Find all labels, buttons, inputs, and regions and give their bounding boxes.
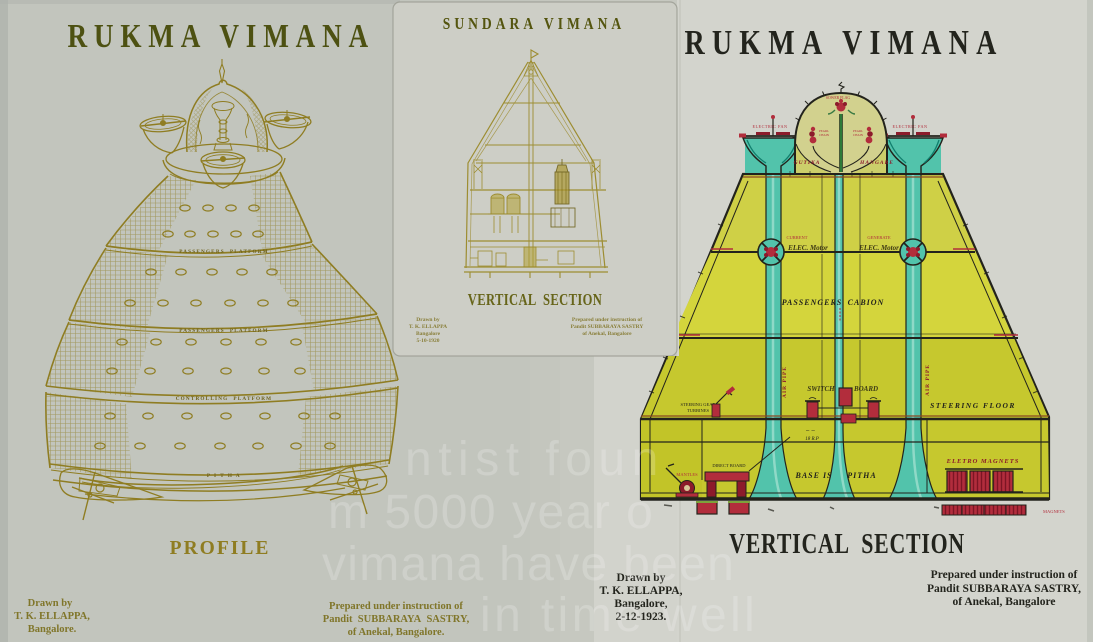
svg-text:MANTLES: MANTLES: [676, 472, 698, 477]
svg-text:ELECTRIC FAN: ELECTRIC FAN: [892, 124, 927, 129]
svg-text:STEERING GEAR: STEERING GEAR: [680, 402, 715, 407]
svg-text:GENERATE: GENERATE: [867, 235, 890, 240]
svg-text:Drawn by: Drawn by: [28, 598, 73, 609]
svg-text:Bangalore: Bangalore: [416, 331, 441, 337]
svg-text:CURRENT: CURRENT: [786, 235, 807, 240]
svg-text:5-10-1920: 5-10-1920: [417, 338, 440, 344]
svg-text:PITHA: PITHA: [847, 471, 876, 480]
svg-text:∼ ∼: ∼ ∼: [805, 429, 815, 434]
svg-text:PROFILE: PROFILE: [170, 538, 271, 559]
svg-text:STEERING FLOOR: STEERING FLOOR: [930, 401, 1016, 410]
svg-text:CABION: CABION: [848, 298, 885, 307]
svg-text:SOWER FLAG: SOWER FLAG: [826, 96, 850, 100]
svg-text:Pandit SUBBARAYA SASTRY: Pandit SUBBARAYA SASTRY: [571, 324, 644, 330]
svg-text:T. K. ELLAPPA,: T. K. ELLAPPA,: [14, 611, 90, 622]
svg-text:P I T H A: P I T H A: [207, 473, 241, 479]
svg-text:CONTROLLING PLATFORM: CONTROLLING PLATFORM: [176, 396, 273, 402]
svg-text:T. K. ELLAPPA: T. K. ELLAPPA: [409, 324, 447, 330]
svg-text:MAGNETS: MAGNETS: [1043, 509, 1065, 514]
svg-text:ELEC. Motor: ELEC. Motor: [787, 244, 828, 252]
svg-text:SUNDARA VIMANA: SUNDARA VIMANA: [443, 15, 625, 34]
svg-text:Pandit SUBBARAYA SASTRY,: Pandit SUBBARAYA SASTRY,: [323, 614, 470, 625]
svg-text:TURBINES: TURBINES: [687, 408, 709, 413]
svg-text:DIRECT BOARD: DIRECT BOARD: [712, 463, 746, 468]
svg-text:GUTIKA: GUTIKA: [794, 160, 821, 166]
svg-text:ELETRO MAGNETS: ELETRO MAGNETS: [946, 458, 1020, 465]
svg-text:SWITCH: SWITCH: [807, 385, 835, 393]
svg-text:RUKMA VIMANA: RUKMA VIMANA: [67, 17, 374, 55]
svg-text:Prepared under instruction of: Prepared under instruction of: [931, 569, 1078, 581]
svg-text:BOARD: BOARD: [853, 385, 878, 393]
svg-text:VERTICAL SECTION: VERTICAL SECTION: [729, 530, 965, 560]
svg-text:PASSENGERS PLATFORM: PASSENGERS PLATFORM: [179, 328, 269, 334]
svg-text:AIR PIPE: AIR PIPE: [782, 366, 788, 398]
svg-text:ELECTRIC FAN: ELECTRIC FAN: [752, 124, 787, 129]
svg-text:of Anekal, Bangalore.: of Anekal, Bangalore.: [348, 627, 445, 638]
svg-text:of Anekal, Bangalore: of Anekal, Bangalore: [953, 596, 1056, 608]
svg-text:Pandit SUBBARAYA SASTRY,: Pandit SUBBARAYA SASTRY,: [927, 583, 1081, 595]
svg-text:18 R.P: 18 R.P: [805, 437, 819, 442]
svg-text:PASSENGERS: PASSENGERS: [782, 298, 843, 307]
svg-text:Prepared under instruction of: Prepared under instruction of: [572, 317, 642, 323]
svg-text:of Anekal, Bangalore: of Anekal, Bangalore: [582, 331, 632, 337]
svg-text:Drawn by: Drawn by: [416, 317, 440, 323]
svg-text:AIR PIPE: AIR PIPE: [925, 364, 931, 396]
svg-text:BASE IS: BASE IS: [794, 471, 832, 480]
svg-text:CHAIN: CHAIN: [819, 133, 830, 137]
svg-text:RUKMA VIMANA: RUKMA VIMANA: [684, 23, 1003, 62]
svg-text:Bangalore.: Bangalore.: [28, 624, 77, 635]
svg-text:HANGARE: HANGARE: [859, 160, 894, 166]
svg-text:VERTICAL SECTION: VERTICAL SECTION: [468, 291, 602, 309]
svg-text:Prepared under instruction of: Prepared under instruction of: [329, 601, 463, 612]
svg-text:ELEC. Motor: ELEC. Motor: [858, 244, 899, 252]
svg-text:CHAIN: CHAIN: [853, 133, 864, 137]
svg-text:PASSENGERS PLATFORM: PASSENGERS PLATFORM: [179, 249, 269, 255]
